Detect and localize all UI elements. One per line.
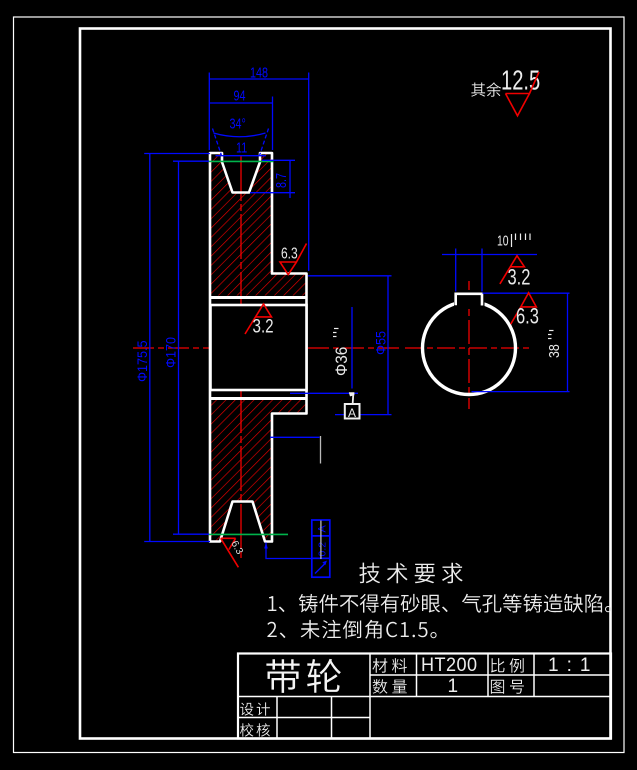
svg-text:HT200: HT200 (421, 654, 478, 676)
svg-text:6.3: 6.3 (516, 304, 539, 329)
svg-text:94: 94 (234, 87, 246, 104)
svg-text:34°: 34° (230, 115, 246, 132)
svg-text:10: 10 (497, 233, 509, 249)
svg-text:Φ55: Φ55 (373, 331, 389, 355)
svg-text:A: A (348, 406, 356, 420)
svg-text:38: 38 (546, 344, 562, 358)
svg-text:3.2: 3.2 (508, 265, 531, 290)
svg-text:6.3: 6.3 (281, 244, 298, 262)
svg-text:8.7: 8.7 (272, 173, 289, 188)
svg-text:3.2: 3.2 (253, 315, 274, 337)
svg-text:Φ175.5: Φ175.5 (134, 340, 150, 382)
svg-text:Φ36: Φ36 (332, 347, 351, 376)
svg-text:Φ170: Φ170 (163, 337, 179, 368)
svg-text:148: 148 (250, 64, 268, 81)
svg-text:A: A (317, 525, 329, 533)
svg-text:11: 11 (236, 139, 247, 156)
svg-text:0.2: 0.2 (317, 542, 329, 557)
svg-text:1:1: 1:1 (548, 655, 598, 676)
svg-text:1: 1 (448, 676, 459, 697)
